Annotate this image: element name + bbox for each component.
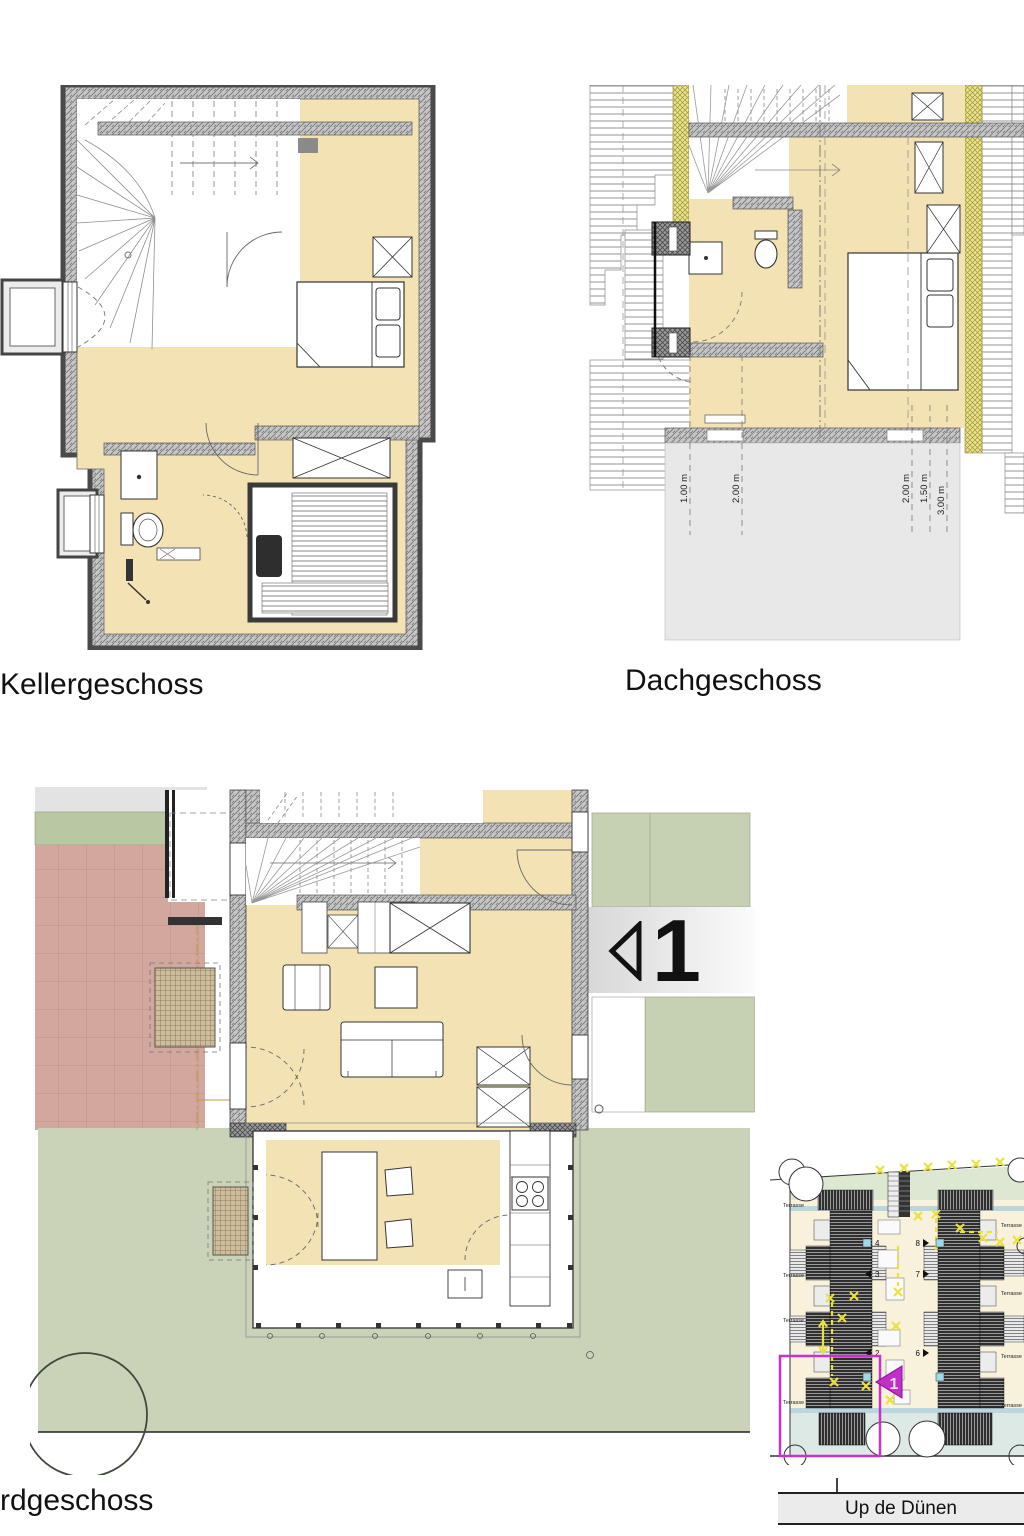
floorplan-sheet: Kellergeschoss — [0, 0, 1024, 1536]
terrace-label: Terrasse — [1001, 1291, 1022, 1297]
height-label: 3.00 m — [936, 486, 947, 515]
height-label: 1.50 m — [919, 474, 930, 503]
keller-lightwell-lower — [58, 490, 104, 557]
street-name: Up de Dünen — [845, 1498, 957, 1520]
unit-number: 3 — [875, 1270, 880, 1279]
height-label: 2.00 m — [731, 474, 742, 503]
unit-number: 7 — [916, 1270, 921, 1279]
terrace-label: Terrasse — [783, 1400, 804, 1406]
height-label: 2.00 m — [901, 474, 912, 503]
site-highlight-number: 1 — [890, 1376, 899, 1393]
dach-roof-right — [982, 85, 1024, 513]
erd-chair — [385, 1219, 413, 1248]
terrace-label: Terrasse — [1001, 1223, 1022, 1229]
erdgeschoss-plan — [30, 785, 755, 1475]
keller-title: Kellergeschoss — [0, 668, 203, 702]
kellergeschoss-plan — [0, 85, 455, 650]
erd-chair — [385, 1167, 413, 1196]
unit-number: 6 — [916, 1349, 921, 1358]
dach-low-headroom-area — [665, 443, 960, 640]
erd-kitchen — [510, 1131, 550, 1306]
dach-title: Dachgeschoss — [625, 664, 822, 698]
terrace-label: Terrasse — [783, 1273, 804, 1279]
terrace-label: Terrasse — [1001, 1403, 1022, 1409]
terrace-label: Terrasse — [1001, 1354, 1022, 1360]
street-name-bar: Up de Dünen — [778, 1492, 1024, 1525]
unit-number: 8 — [916, 1239, 921, 1248]
erd-title: rdgeschoss — [0, 1484, 153, 1518]
dachgeschoss-plan: 1.00 m 2.00 m 2.00 m 1.50 m 3.00 m — [585, 85, 1024, 645]
site-stair-block — [888, 1172, 910, 1217]
keller-sauna — [250, 485, 395, 620]
erd-dining-table — [322, 1152, 377, 1260]
keller-bed — [297, 282, 404, 367]
terrace-label: Terrasse — [783, 1318, 804, 1324]
site-plan: 4 8 3 7 2 6 1 Terrasse Terrasse Terrasse… — [770, 1150, 1024, 1465]
keller-stairs — [77, 99, 318, 349]
unit-marker-triangle-icon — [608, 921, 644, 981]
street-bar-tick — [836, 1478, 838, 1492]
erd-stove — [512, 1177, 548, 1210]
unit-number: 4 — [875, 1239, 880, 1248]
height-label: 1.00 m — [679, 474, 690, 503]
unit-marker-number: 1 — [652, 916, 701, 986]
terrace-label: Terrasse — [783, 1203, 804, 1209]
unit-number-marker: 1 — [608, 916, 701, 986]
dach-bed — [848, 253, 958, 390]
